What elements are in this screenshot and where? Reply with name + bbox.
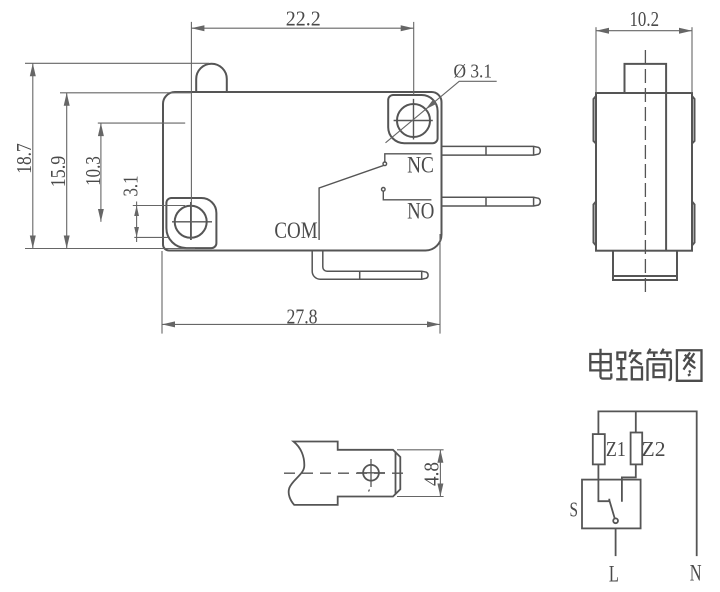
svg-text:3.1: 3.1 — [119, 176, 143, 197]
svg-text:4.8: 4.8 — [420, 462, 444, 486]
svg-text:Z2: Z2 — [642, 437, 666, 461]
svg-text:NO: NO — [407, 199, 434, 224]
svg-text:18.7: 18.7 — [12, 143, 36, 174]
svg-text:N: N — [690, 561, 702, 586]
svg-text:NC: NC — [407, 152, 434, 177]
svg-text:22.2: 22.2 — [286, 7, 321, 31]
svg-text:10.3: 10.3 — [81, 156, 105, 186]
svg-text:Ø 3.1: Ø 3.1 — [454, 61, 493, 83]
svg-text:COM: COM — [274, 218, 317, 243]
svg-text:27.8: 27.8 — [287, 305, 318, 329]
svg-text:L: L — [609, 562, 619, 587]
svg-text:15.9: 15.9 — [46, 156, 70, 188]
svg-text:Z1: Z1 — [606, 437, 626, 461]
svg-text:S: S — [570, 497, 579, 521]
svg-text:10.2: 10.2 — [630, 7, 660, 31]
